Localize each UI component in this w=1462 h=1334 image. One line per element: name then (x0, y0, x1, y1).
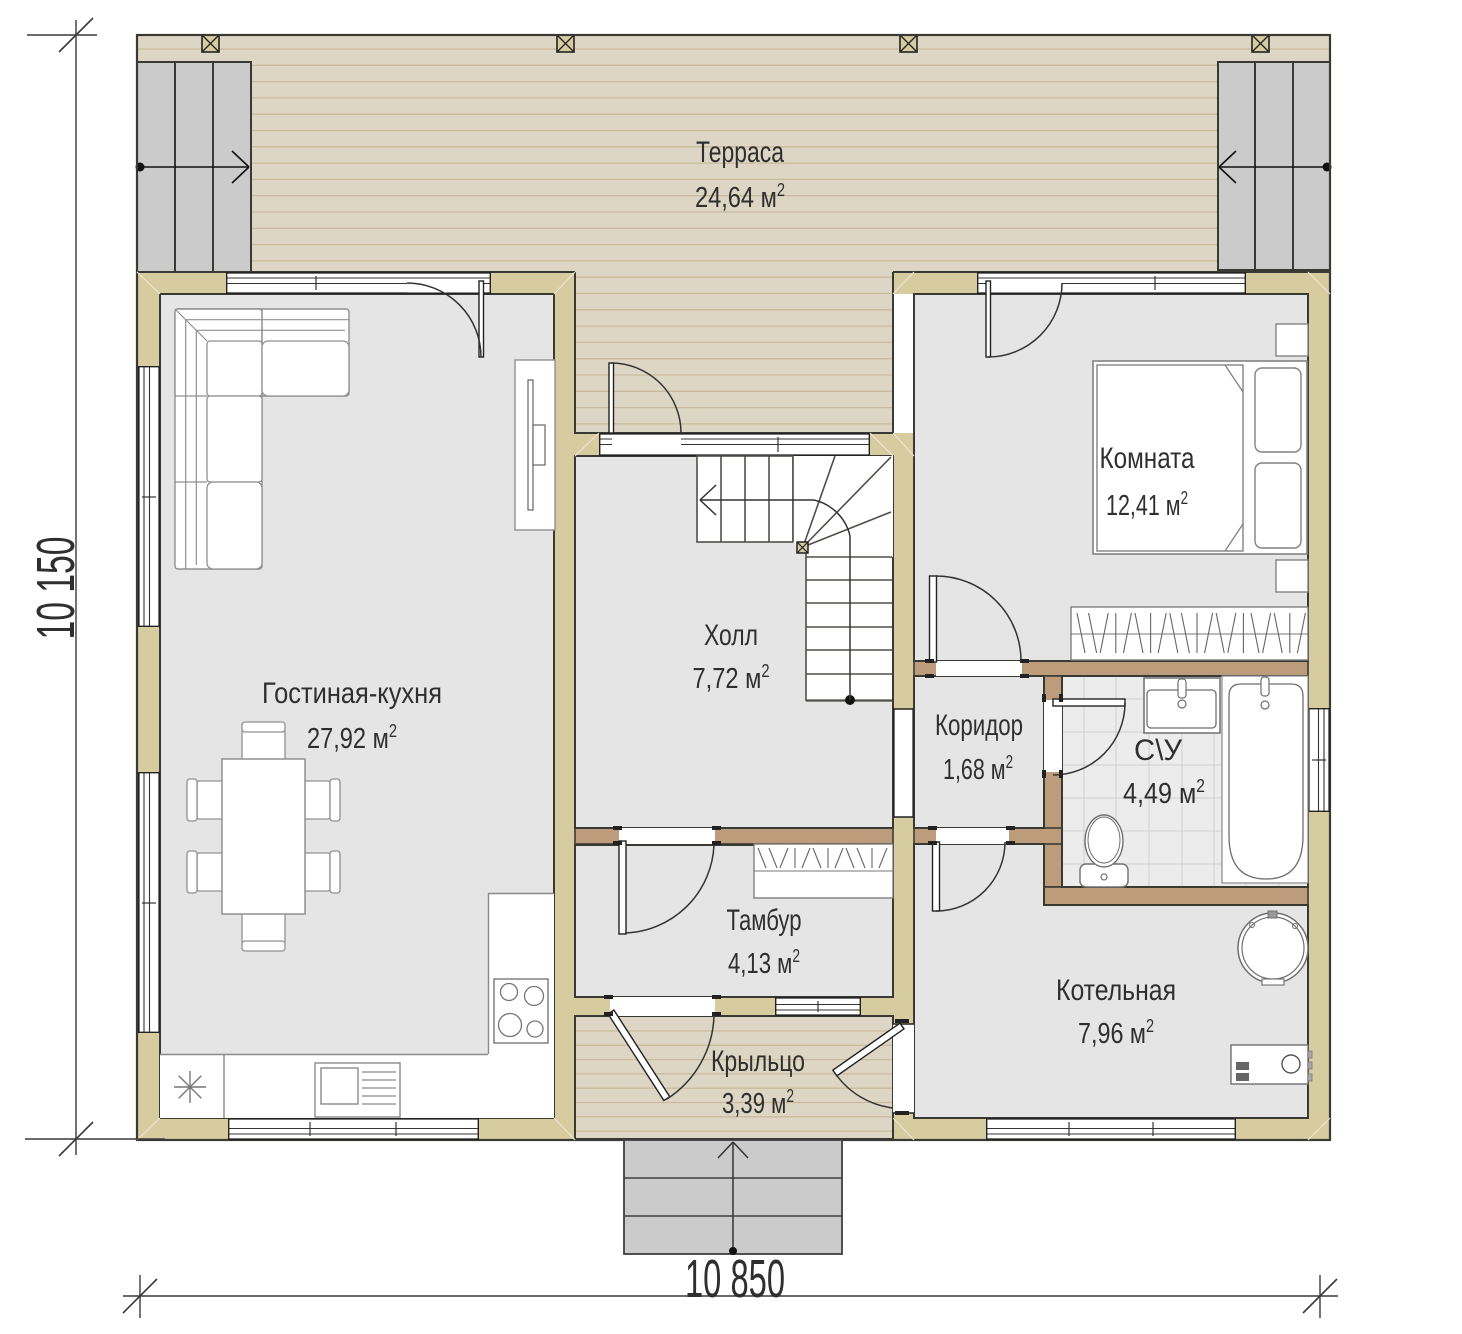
svg-text:12,41 м2: 12,41 м2 (1106, 488, 1188, 522)
svg-text:3,39 м2: 3,39 м2 (722, 1086, 794, 1120)
svg-text:1,68 м2: 1,68 м2 (943, 752, 1013, 786)
svg-text:4,13 м2: 4,13 м2 (728, 946, 800, 980)
svg-text:Крыльцо: Крыльцо (711, 1045, 805, 1078)
svg-text:Комната: Комната (1100, 442, 1195, 475)
svg-text:Гостиная-кухня: Гостиная-кухня (262, 677, 442, 710)
svg-text:27,92 м2: 27,92 м2 (307, 721, 397, 755)
svg-text:24,64 м2: 24,64 м2 (695, 180, 785, 214)
svg-text:4,49 м2: 4,49 м2 (1123, 776, 1205, 810)
svg-text:Холл: Холл (704, 619, 758, 652)
svg-text:Котельная: Котельная (1056, 974, 1176, 1007)
svg-text:10 150: 10 150 (26, 537, 86, 640)
svg-text:7,96 м2: 7,96 м2 (1078, 1016, 1154, 1050)
svg-text:С\У: С\У (1134, 734, 1183, 767)
svg-text:7,72 м2: 7,72 м2 (693, 661, 770, 695)
svg-text:Коридор: Коридор (935, 709, 1023, 742)
svg-text:Тамбур: Тамбур (727, 904, 802, 937)
svg-text:10 850: 10 850 (685, 1249, 785, 1309)
svg-text:Терраса: Терраса (696, 136, 784, 169)
